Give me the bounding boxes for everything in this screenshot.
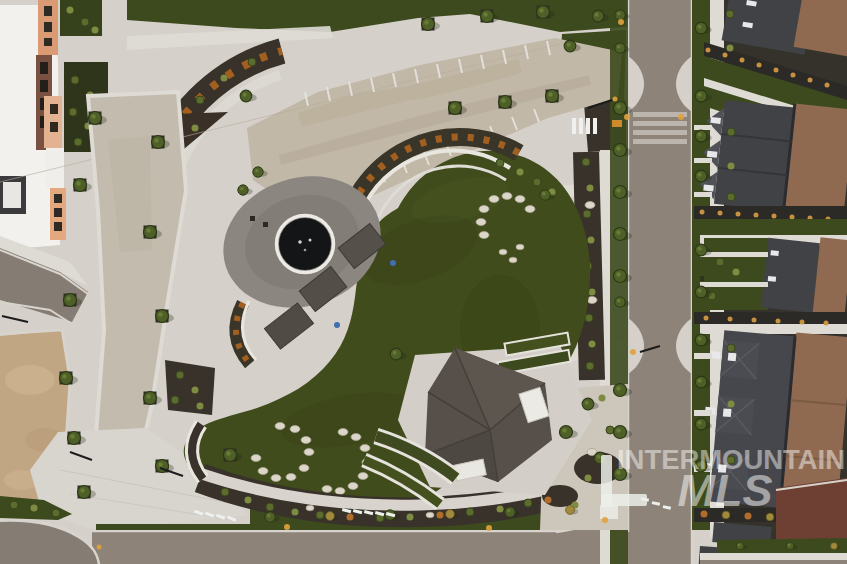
fountain-basin: [279, 218, 331, 270]
building-window: [40, 62, 48, 74]
building-window: [40, 80, 48, 92]
building-window: [44, 38, 52, 46]
porch-trim: [707, 151, 718, 158]
front-walk-stub: [694, 192, 712, 197]
townhome-band-c: [760, 232, 847, 320]
porch-trim: [703, 185, 714, 192]
roof-gray: [761, 238, 820, 313]
rear-walk: [700, 553, 847, 560]
building-window: [54, 222, 62, 231]
building-window: [54, 208, 62, 217]
porch-trim: [768, 276, 776, 282]
dome-pad: [612, 120, 622, 127]
bottom-street: [92, 532, 632, 564]
site-furnishing: [250, 216, 255, 221]
site-furnishing: [263, 222, 268, 227]
aerial-photo-canvas: INTERMOUNTAIN MLS: [0, 0, 847, 564]
blue-marker: [334, 322, 340, 328]
aerial-photo: INTERMOUNTAIN MLS: [0, 0, 847, 564]
building-window: [54, 194, 62, 203]
building-window: [44, 6, 52, 16]
building-window: [50, 104, 58, 114]
rear-lane: [700, 560, 847, 564]
yard-grass: [700, 219, 847, 235]
fountain-jet: [304, 249, 307, 252]
watermark-line2: MLS: [678, 465, 773, 516]
corner-paint-marking: [601, 494, 647, 506]
front-walk-stub: [694, 158, 712, 163]
alley: [694, 206, 847, 219]
roof-red: [776, 478, 847, 540]
front-walk-stub: [694, 353, 712, 359]
blue-marker: [390, 260, 396, 266]
building-window: [44, 22, 52, 32]
front-walk: [700, 282, 768, 287]
dirt-blotch: [5, 365, 55, 395]
rear-walk: [700, 324, 847, 334]
porch-trim: [710, 117, 721, 124]
townhome-band-b: [698, 95, 847, 218]
front-walk-stub: [694, 125, 712, 130]
roof-gray: [714, 100, 794, 211]
fountain-jet: [298, 240, 302, 244]
fountain-jet: [309, 239, 312, 242]
mulch-bed: [165, 360, 215, 415]
building-window: [50, 122, 58, 132]
annex-roof: [3, 182, 21, 208]
porch-trim: [770, 250, 778, 256]
street-grass-strip: [96, 524, 250, 530]
seating-pad: [600, 505, 618, 519]
front-walk-stub: [694, 410, 712, 416]
